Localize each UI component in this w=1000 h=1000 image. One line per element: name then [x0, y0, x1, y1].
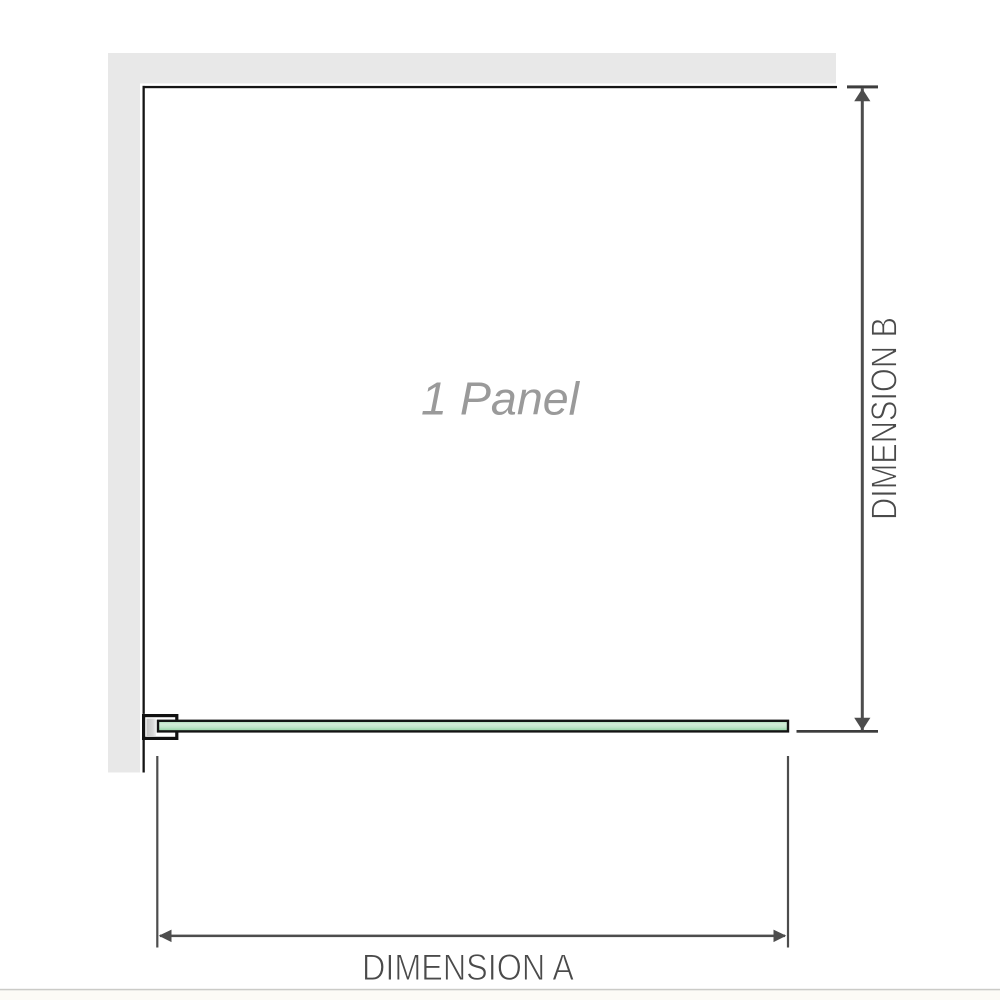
svg-text:DIMENSION B: DIMENSION B — [864, 317, 905, 520]
svg-text:1 Panel: 1 Panel — [421, 373, 581, 425]
svg-text:DIMENSION A: DIMENSION A — [362, 946, 574, 988]
